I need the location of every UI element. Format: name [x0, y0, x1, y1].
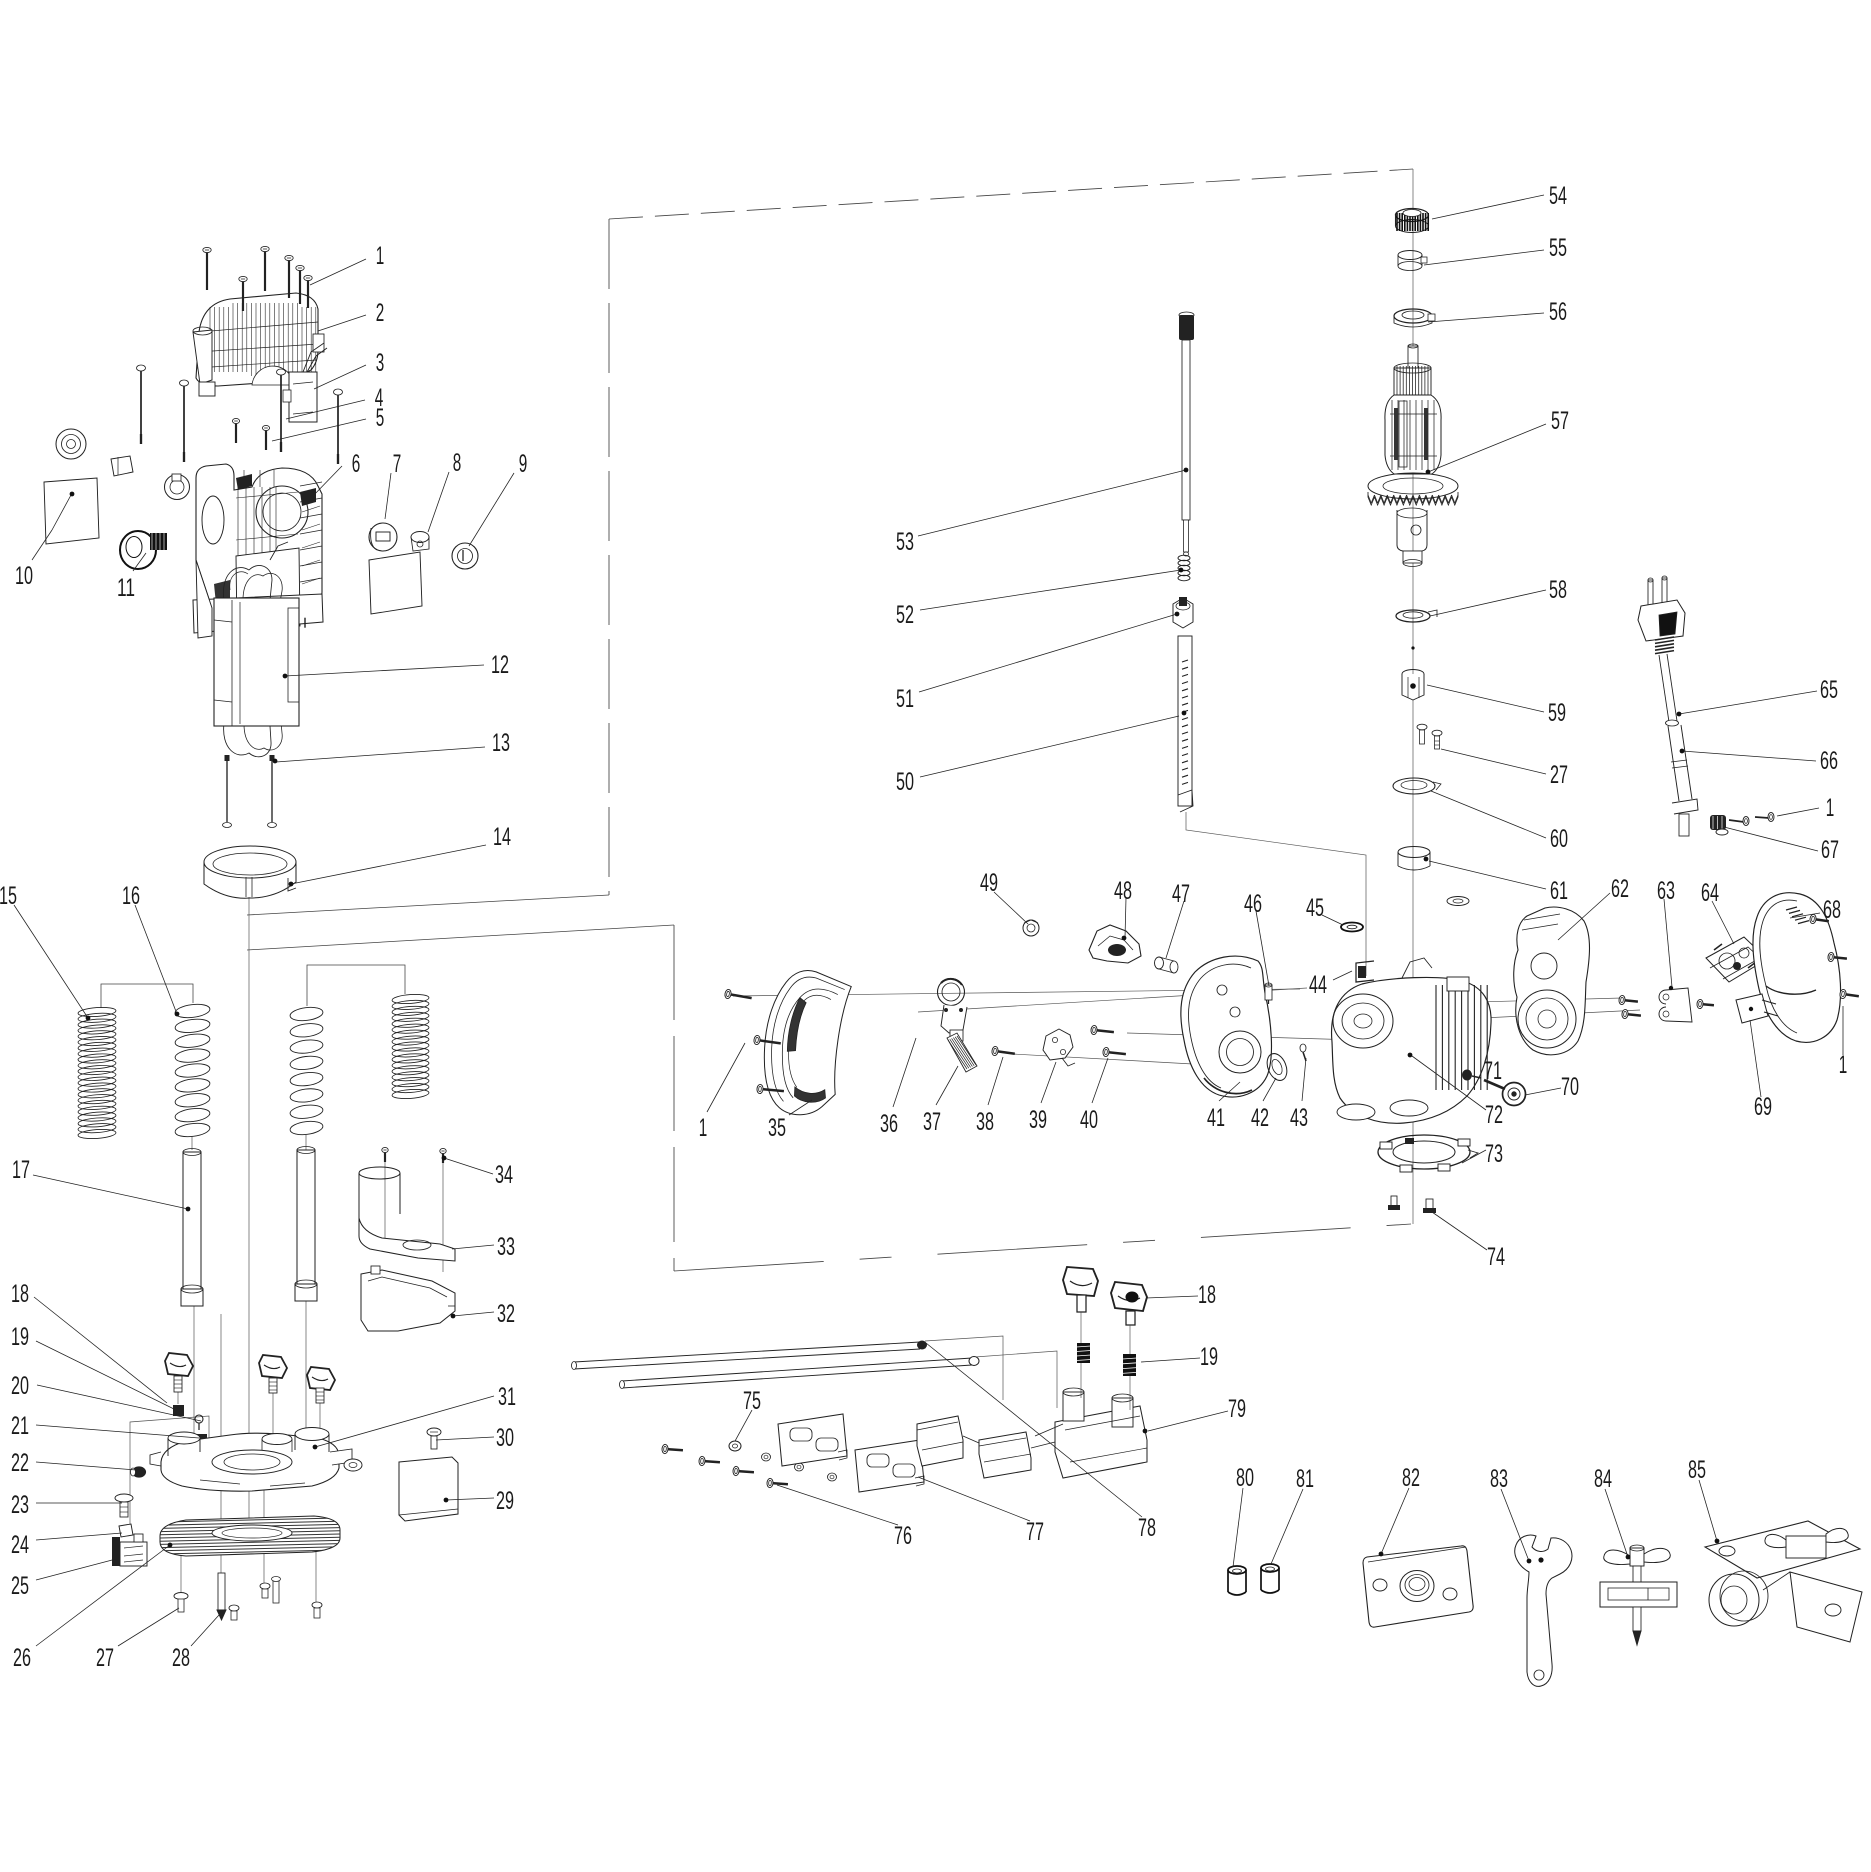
svg-text:29: 29: [496, 1487, 514, 1515]
svg-text:36: 36: [880, 1110, 898, 1138]
svg-text:6: 6: [352, 450, 361, 478]
svg-text:1: 1: [1839, 1051, 1848, 1079]
svg-text:74: 74: [1487, 1243, 1505, 1271]
svg-text:63: 63: [1657, 877, 1675, 905]
svg-text:28: 28: [172, 1644, 190, 1672]
svg-text:70: 70: [1561, 1073, 1579, 1101]
svg-text:8: 8: [453, 449, 462, 477]
svg-text:16: 16: [122, 882, 140, 910]
svg-text:45: 45: [1306, 894, 1324, 922]
svg-text:50: 50: [896, 768, 914, 796]
svg-text:47: 47: [1172, 880, 1190, 908]
svg-text:52: 52: [896, 601, 914, 629]
svg-text:30: 30: [496, 1424, 514, 1452]
svg-text:3: 3: [376, 349, 385, 377]
svg-text:40: 40: [1080, 1106, 1098, 1134]
svg-text:66: 66: [1820, 747, 1838, 775]
svg-text:18: 18: [1198, 1281, 1216, 1309]
svg-text:10: 10: [15, 562, 33, 590]
svg-text:82: 82: [1402, 1464, 1420, 1492]
svg-text:1: 1: [376, 242, 385, 270]
svg-text:58: 58: [1549, 576, 1567, 604]
svg-text:12: 12: [491, 651, 509, 679]
svg-text:37: 37: [923, 1108, 941, 1136]
svg-text:75: 75: [743, 1387, 761, 1415]
svg-text:2: 2: [376, 299, 385, 327]
svg-text:44: 44: [1309, 971, 1327, 999]
svg-text:22: 22: [11, 1449, 29, 1477]
svg-text:80: 80: [1236, 1464, 1254, 1492]
svg-text:62: 62: [1611, 875, 1629, 903]
svg-text:84: 84: [1594, 1465, 1612, 1493]
svg-text:38: 38: [976, 1108, 994, 1136]
svg-text:42: 42: [1251, 1104, 1269, 1132]
svg-text:24: 24: [11, 1531, 29, 1559]
svg-text:27: 27: [96, 1644, 114, 1672]
svg-text:51: 51: [896, 685, 914, 713]
svg-text:43: 43: [1290, 1104, 1308, 1132]
svg-text:48: 48: [1114, 877, 1132, 905]
svg-text:27: 27: [1550, 761, 1568, 789]
svg-text:59: 59: [1548, 699, 1566, 727]
svg-text:25: 25: [11, 1572, 29, 1600]
svg-text:61: 61: [1550, 877, 1568, 905]
svg-text:55: 55: [1549, 234, 1567, 262]
svg-text:21: 21: [11, 1412, 29, 1440]
svg-text:65: 65: [1820, 676, 1838, 704]
svg-text:7: 7: [393, 450, 402, 478]
svg-text:18: 18: [11, 1280, 29, 1308]
svg-text:13: 13: [492, 729, 510, 757]
svg-text:81: 81: [1296, 1465, 1314, 1493]
svg-text:33: 33: [497, 1233, 515, 1261]
svg-text:83: 83: [1490, 1465, 1508, 1493]
svg-text:26: 26: [13, 1644, 31, 1672]
svg-text:85: 85: [1688, 1456, 1706, 1484]
svg-text:67: 67: [1821, 836, 1839, 864]
svg-text:73: 73: [1485, 1140, 1503, 1168]
svg-text:78: 78: [1138, 1514, 1156, 1542]
svg-text:76: 76: [894, 1522, 912, 1550]
svg-text:71: 71: [1484, 1057, 1502, 1085]
svg-text:5: 5: [376, 404, 385, 432]
svg-text:79: 79: [1228, 1395, 1246, 1423]
svg-text:41: 41: [1207, 1104, 1225, 1132]
svg-text:23: 23: [11, 1491, 29, 1519]
svg-text:68: 68: [1823, 896, 1841, 924]
svg-text:64: 64: [1701, 879, 1719, 907]
svg-text:9: 9: [519, 450, 528, 478]
svg-text:34: 34: [495, 1161, 513, 1189]
svg-text:39: 39: [1029, 1106, 1047, 1134]
svg-text:60: 60: [1550, 825, 1568, 853]
svg-text:56: 56: [1549, 298, 1567, 326]
svg-text:32: 32: [497, 1300, 515, 1328]
svg-text:54: 54: [1549, 182, 1567, 210]
svg-text:57: 57: [1551, 407, 1569, 435]
svg-text:69: 69: [1754, 1093, 1772, 1121]
svg-text:35: 35: [768, 1114, 786, 1142]
svg-text:11: 11: [117, 574, 135, 602]
svg-text:31: 31: [498, 1383, 516, 1411]
svg-text:72: 72: [1485, 1101, 1503, 1129]
svg-text:1: 1: [699, 1114, 708, 1142]
svg-text:20: 20: [11, 1372, 29, 1400]
svg-text:17: 17: [12, 1156, 30, 1184]
svg-text:77: 77: [1026, 1518, 1044, 1546]
svg-text:46: 46: [1244, 890, 1262, 918]
svg-text:15: 15: [0, 882, 17, 910]
svg-text:49: 49: [980, 869, 998, 897]
svg-text:19: 19: [1200, 1343, 1218, 1371]
svg-text:14: 14: [493, 823, 511, 851]
svg-text:1: 1: [1826, 794, 1835, 822]
svg-text:53: 53: [896, 528, 914, 556]
svg-text:19: 19: [11, 1323, 29, 1351]
